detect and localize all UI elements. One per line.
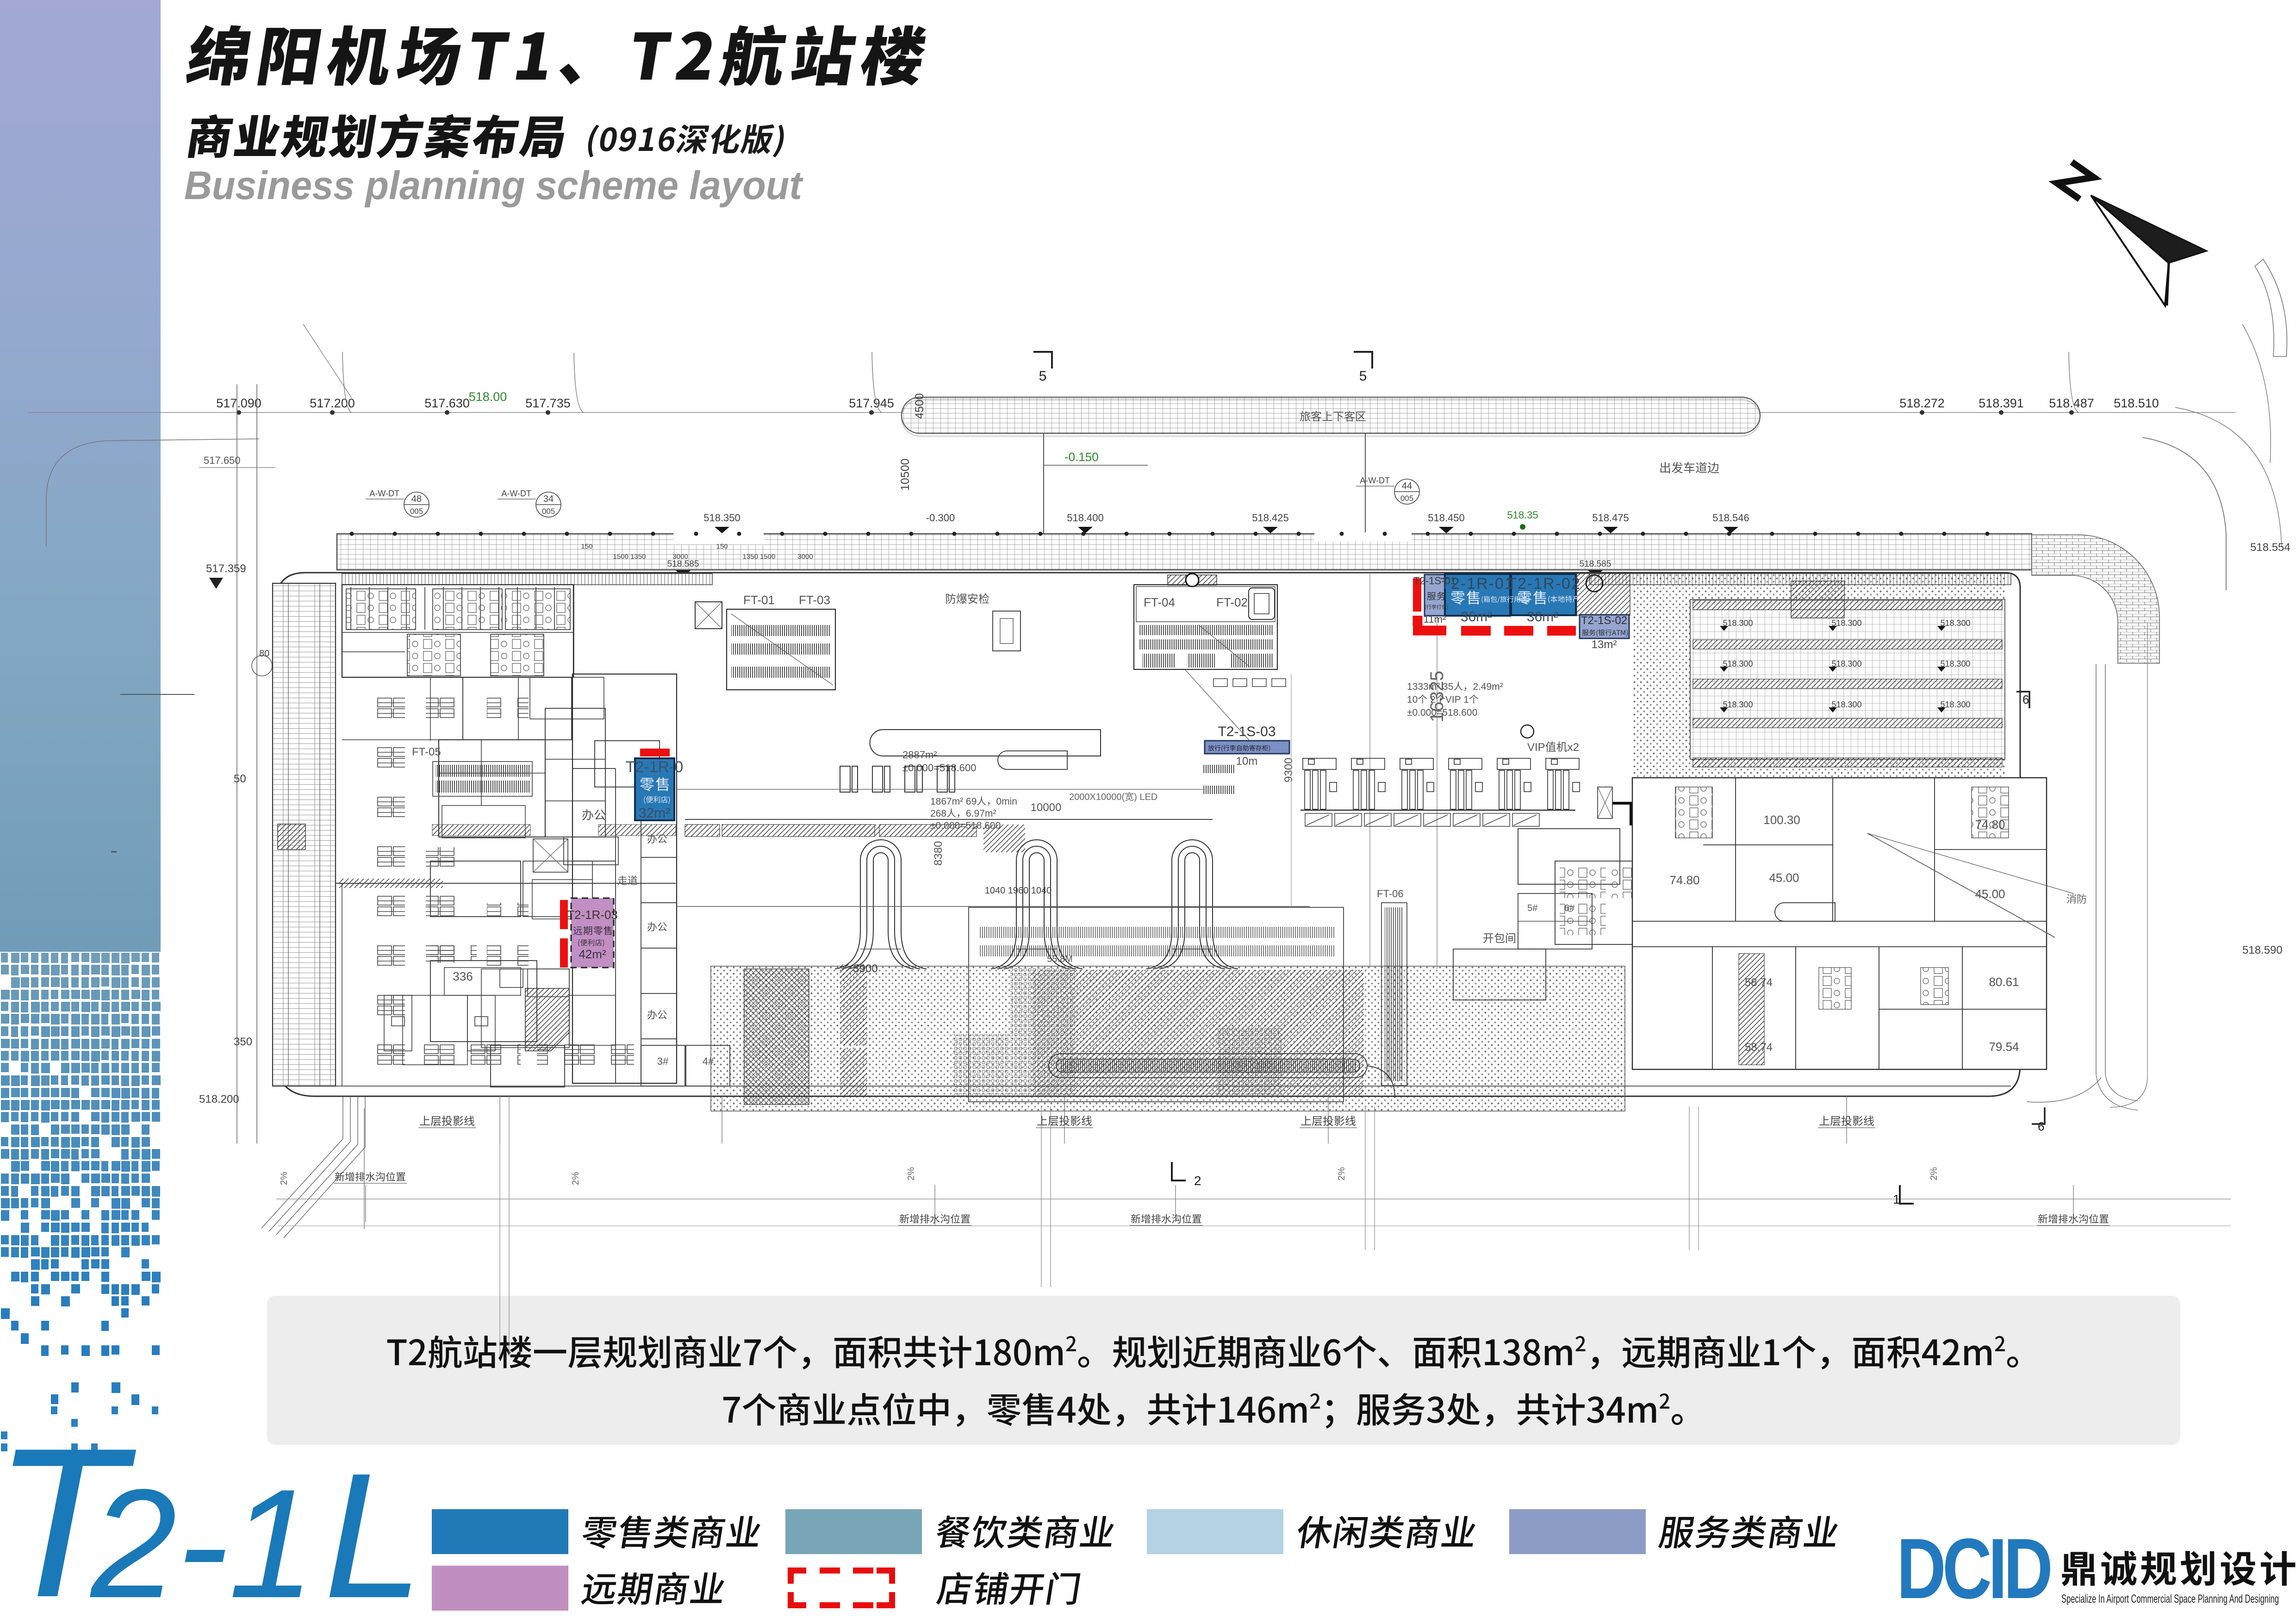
svg-text:80.61: 80.61 <box>1989 975 2019 989</box>
svg-text:FT-04: FT-04 <box>1144 595 1175 609</box>
svg-text:10500: 10500 <box>899 458 912 491</box>
svg-text:518.00: 518.00 <box>469 390 507 404</box>
svg-text:FT-06: FT-06 <box>1377 888 1403 899</box>
svg-text:336: 336 <box>453 969 473 983</box>
svg-text:518.450: 518.450 <box>1428 512 1465 524</box>
svg-text:36m²: 36m² <box>1461 609 1492 625</box>
svg-text:办公: 办公 <box>647 1009 667 1021</box>
svg-text:A-W-DT: A-W-DT <box>1360 476 1390 485</box>
svg-text:9300: 9300 <box>1282 758 1295 782</box>
svg-text:T2-1R-0: T2-1R-0 <box>626 758 684 776</box>
svg-text:518.200: 518.200 <box>199 1093 239 1106</box>
svg-text:32m²: 32m² <box>639 806 670 821</box>
svg-text:办公: 办公 <box>647 921 667 933</box>
svg-text:2887m²: 2887m² <box>902 749 937 761</box>
svg-text:8380: 8380 <box>932 841 945 866</box>
svg-text:消防: 消防 <box>2066 893 2087 905</box>
svg-text:518.590: 518.590 <box>2242 944 2283 956</box>
svg-text:2%: 2% <box>1337 1167 1347 1181</box>
svg-text:36m²: 36m² <box>1527 609 1558 625</box>
svg-text:268人，6.97m²: 268人，6.97m² <box>930 808 996 819</box>
svg-text:518.272: 518.272 <box>1899 396 1945 410</box>
svg-text:79.54: 79.54 <box>1989 1040 2019 1054</box>
svg-text:518.475: 518.475 <box>1592 512 1629 524</box>
svg-text:1: 1 <box>1893 1192 1900 1206</box>
svg-text:4#: 4# <box>703 1056 714 1067</box>
svg-text:T2-1S-01: T2-1S-01 <box>1413 575 1456 587</box>
svg-text:FT-05: FT-05 <box>412 746 441 758</box>
svg-text:2000X10000(宽) LED: 2000X10000(宽) LED <box>1069 792 1157 802</box>
svg-text:10000: 10000 <box>1031 801 1062 814</box>
svg-text:±0.000=518.600: ±0.000=518.600 <box>902 762 977 774</box>
svg-text:6: 6 <box>2038 1119 2044 1133</box>
svg-text:T2-1R-03: T2-1R-03 <box>567 908 618 922</box>
svg-text:2%: 2% <box>279 1172 289 1185</box>
svg-text:350: 350 <box>234 1036 252 1048</box>
svg-text:517.945: 517.945 <box>849 396 894 410</box>
svg-text:A-W-DT: A-W-DT <box>501 489 531 498</box>
svg-text:FT-01: FT-01 <box>743 593 775 607</box>
svg-text:518.400: 518.400 <box>1067 512 1104 524</box>
svg-text:3#: 3# <box>657 1056 669 1067</box>
svg-text:-0.300: -0.300 <box>926 512 955 524</box>
svg-text:3000: 3000 <box>672 553 688 561</box>
svg-text:11m²: 11m² <box>1424 613 1446 625</box>
svg-text:150: 150 <box>716 543 728 550</box>
svg-text:10m: 10m <box>1236 755 1258 768</box>
svg-text:45.00: 45.00 <box>1769 871 1799 885</box>
svg-text:50: 50 <box>234 773 246 785</box>
svg-text:办公: 办公 <box>582 808 606 822</box>
svg-text:42m²: 42m² <box>579 947 606 961</box>
svg-text:5: 5 <box>1359 369 1367 384</box>
svg-text:518.546: 518.546 <box>1712 512 1749 524</box>
svg-text:518.585: 518.585 <box>1580 559 1612 569</box>
svg-text:1350 1500: 1350 1500 <box>743 553 776 561</box>
svg-text:-0.150: -0.150 <box>1064 450 1099 464</box>
svg-text:518.487: 518.487 <box>2049 396 2094 410</box>
svg-text:005: 005 <box>410 507 423 516</box>
svg-text:517.735: 517.735 <box>525 396 571 410</box>
svg-text:2%: 2% <box>1929 1167 1939 1181</box>
svg-text:518.510: 518.510 <box>2114 396 2159 410</box>
svg-text:VIP值机x2: VIP值机x2 <box>1527 741 1579 754</box>
svg-text:1500 1350: 1500 1350 <box>613 553 646 561</box>
svg-text:005: 005 <box>1400 494 1413 503</box>
svg-text:74.80: 74.80 <box>1975 818 2005 831</box>
svg-text:517.630: 517.630 <box>424 396 470 410</box>
svg-text:防爆安检: 防爆安检 <box>945 593 989 606</box>
svg-text:1040 1960 1040: 1040 1960 1040 <box>985 886 1052 896</box>
svg-text:FT-02: FT-02 <box>1216 595 1248 609</box>
svg-text:518.35: 518.35 <box>1507 509 1538 521</box>
svg-text:10个 2个VIP 1个: 10个 2个VIP 1个 <box>1407 694 1479 705</box>
svg-text:518.554: 518.554 <box>2250 541 2290 554</box>
svg-text:5: 5 <box>1039 369 1047 384</box>
svg-text:45.00: 45.00 <box>1975 887 2005 901</box>
svg-text:4500: 4500 <box>913 393 926 419</box>
svg-text:13m²: 13m² <box>1592 638 1617 651</box>
svg-text:走道: 走道 <box>617 875 638 887</box>
svg-text:5#: 5# <box>1527 903 1538 913</box>
svg-text:T2-1S-03: T2-1S-03 <box>1218 724 1276 739</box>
svg-text:517.650: 517.650 <box>204 455 241 466</box>
svg-text:55.8M: 55.8M <box>1047 954 1073 964</box>
svg-text:开包间: 开包间 <box>1483 932 1516 945</box>
svg-text:6#: 6# <box>1564 903 1575 913</box>
svg-text:48: 48 <box>411 494 422 504</box>
svg-text:1333m² 35人，2.49m²: 1333m² 35人，2.49m² <box>1407 681 1503 692</box>
svg-text:100.30: 100.30 <box>1763 813 1800 827</box>
svg-text:518.425: 518.425 <box>1252 512 1289 524</box>
svg-text:A-W-DT: A-W-DT <box>369 489 399 498</box>
svg-text:517.090: 517.090 <box>216 396 261 410</box>
svg-text:005: 005 <box>542 507 555 516</box>
svg-text:2: 2 <box>1194 1174 1201 1188</box>
svg-text:3000: 3000 <box>797 553 813 561</box>
svg-text:34: 34 <box>543 494 554 504</box>
svg-text:518.585: 518.585 <box>667 559 699 569</box>
svg-text:2%: 2% <box>906 1167 916 1181</box>
svg-text:44: 44 <box>1402 481 1412 491</box>
svg-text:T2-1S-02: T2-1S-02 <box>1581 614 1627 627</box>
svg-text:出发车道边: 出发车道边 <box>1659 461 1719 475</box>
svg-text:150: 150 <box>581 543 592 550</box>
svg-text:FT-03: FT-03 <box>799 593 830 607</box>
svg-text:517.359: 517.359 <box>206 562 246 575</box>
svg-text:T2-1R-02: T2-1R-02 <box>1507 575 1581 593</box>
svg-text:2%: 2% <box>571 1172 581 1185</box>
svg-text:±0.000=518.600: ±0.000=518.600 <box>1407 707 1477 718</box>
svg-text:6: 6 <box>2022 693 2029 706</box>
svg-text:518.391: 518.391 <box>1979 396 2024 410</box>
svg-text:518.350: 518.350 <box>703 512 740 524</box>
svg-text:74.80: 74.80 <box>1669 873 1699 887</box>
svg-text:1867m² 69人，0min: 1867m² 69人，0min <box>930 796 1017 807</box>
svg-text:旅客上下客区: 旅客上下客区 <box>1300 411 1366 423</box>
